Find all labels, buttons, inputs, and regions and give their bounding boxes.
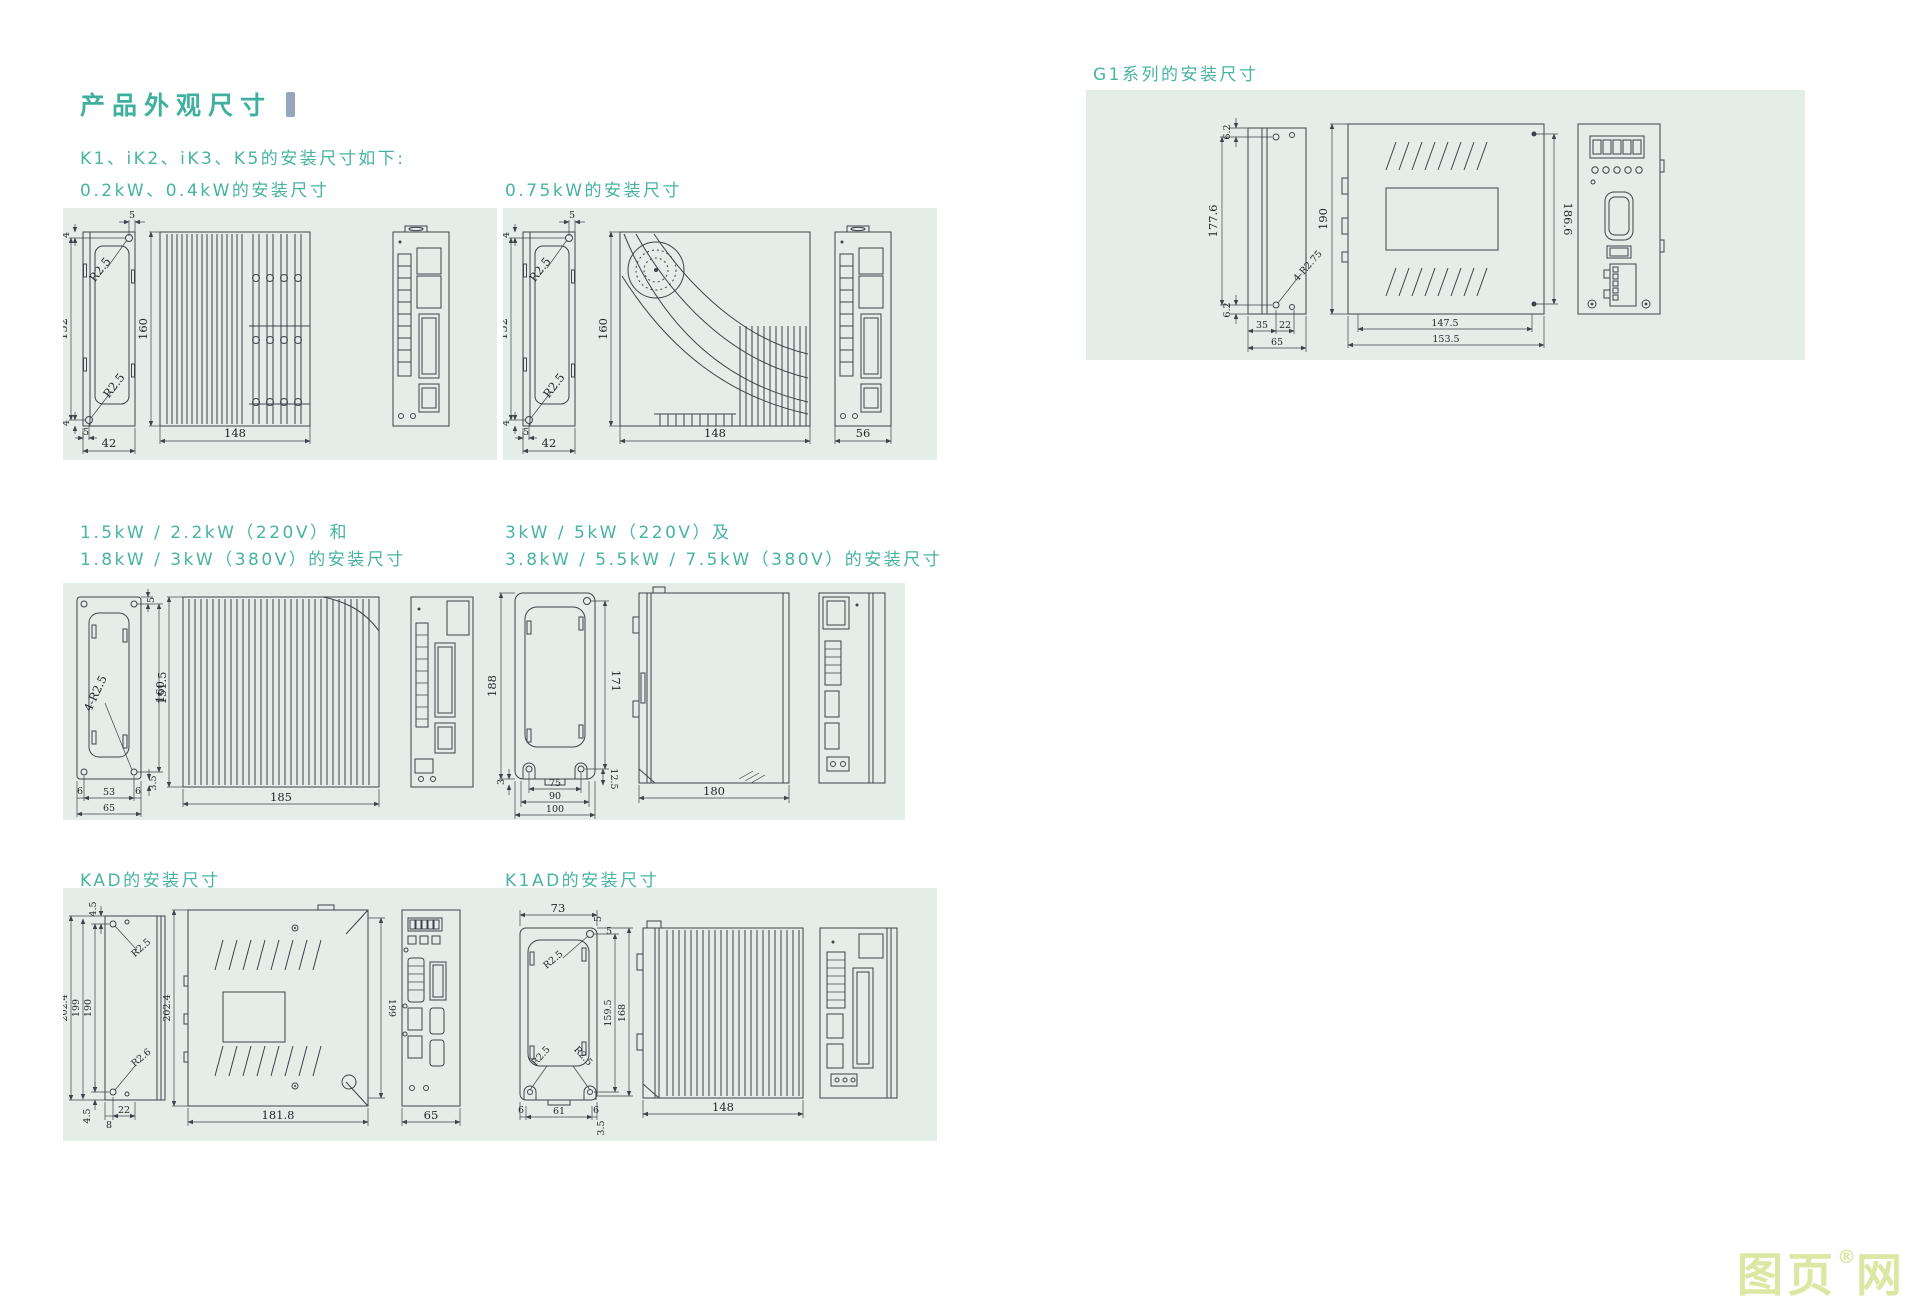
dim-171: 171 bbox=[609, 670, 623, 692]
caption-3kw-line1: 3kW / 5kW（220V）及 bbox=[505, 518, 732, 543]
page-title: 产品外观尺寸 bbox=[80, 86, 272, 122]
dim-35: 3.5 bbox=[596, 1120, 607, 1135]
mounting-plate-view-drawing-3kw: 188 171 3 75 90 100 12.5 bbox=[485, 593, 623, 819]
dim-75: 75 bbox=[549, 778, 561, 789]
side-view-drawing: 4 5 R2.5 152 R2.5 4 5 bbox=[503, 210, 585, 454]
heatsink-view-drawing: 160 148 bbox=[136, 232, 310, 444]
dim-r25-bottom: R2.5 bbox=[540, 371, 568, 401]
mounting-plate-view-drawing-k1ad: 73 5 5 R2.5 159.5 168 R2.5 R2.5 6 bbox=[518, 901, 633, 1136]
top-view-drawing: 190 186.6 147.5 153.5 bbox=[1316, 124, 1575, 348]
dim-35: 35 bbox=[1256, 320, 1268, 331]
back-view-drawing: 56 bbox=[835, 226, 891, 444]
dim-r25-bl: R2.5 bbox=[530, 1044, 553, 1068]
dim-6-right: 6 bbox=[593, 1105, 599, 1116]
side-view-drawing-3kw: 180 bbox=[633, 587, 789, 803]
dim-6-right: 6 bbox=[135, 786, 141, 797]
back-view-drawing-3kw bbox=[819, 593, 885, 783]
dim-42: 42 bbox=[102, 436, 117, 450]
dim-100: 100 bbox=[546, 804, 564, 815]
caption-075kw: 0.75kW的安装尺寸 bbox=[505, 176, 682, 201]
dim-8: 8 bbox=[106, 1120, 112, 1131]
intro-text: K1、iK2、iK3、K5的安装尺寸如下: bbox=[80, 144, 406, 169]
caption-3kw-line2: 3.8kW / 5.5kW / 7.5kW（380V）的安装尺寸 bbox=[505, 545, 942, 570]
dim-185: 185 bbox=[270, 790, 292, 804]
dim-1866: 186.6 bbox=[1561, 203, 1575, 236]
dim-35: 3.5 bbox=[148, 775, 159, 790]
dim-r25-bottom: R2.5 bbox=[100, 371, 128, 401]
dim-5-top: 5 bbox=[569, 210, 575, 221]
dim-2024: 202.4 bbox=[63, 994, 70, 1021]
dim-180: 180 bbox=[703, 784, 725, 798]
heatsink-view-drawing: 160 185 bbox=[153, 597, 379, 807]
dim-90: 90 bbox=[549, 791, 561, 802]
back-view-drawing bbox=[411, 597, 473, 787]
drawing-02kw: 4 5 R2.5 152 R2.5 4 5 bbox=[63, 208, 497, 460]
dim-65: 65 bbox=[424, 1108, 439, 1122]
dim-1535: 153.5 bbox=[1432, 334, 1459, 345]
panel-kad-k1ad: 202.4 199 190 4.5 R2.5 R2.6 8 22 bbox=[63, 888, 937, 1141]
drawing-15kw-3kw: 5 151.5 4-R2.5 6 53 6 65 3.5 bbox=[63, 583, 905, 820]
dim-5-a: 5 bbox=[593, 916, 604, 922]
dim-4r275: 4-R2.75 bbox=[1291, 249, 1324, 284]
side-view-drawing: 6.2 177.6 6.2 4-R2.75 35 22 65 bbox=[1206, 118, 1325, 352]
dim-56: 56 bbox=[856, 426, 871, 440]
dim-1818: 181.8 bbox=[262, 1108, 295, 1122]
dim-6-left: 6 bbox=[77, 786, 83, 797]
side-view-drawing: 4 5 R2.5 152 R2.5 4 5 bbox=[63, 210, 145, 454]
dim-125: 12.5 bbox=[608, 768, 619, 789]
watermark-text-right: 网 bbox=[1856, 1248, 1906, 1302]
dim-190: 190 bbox=[83, 999, 94, 1017]
drawing-075kw: 4 5 R2.5 152 R2.5 4 5 bbox=[503, 208, 937, 460]
dim-65: 65 bbox=[103, 803, 115, 814]
dim-190: 190 bbox=[1316, 208, 1330, 230]
dim-160: 160 bbox=[153, 681, 167, 703]
document-page: 产品外观尺寸 K1、iK2、iK3、K5的安装尺寸如下: 0.2kW、0.4kW… bbox=[0, 0, 1920, 1302]
dim-160: 160 bbox=[596, 318, 610, 340]
dim-5-top: 5 bbox=[129, 210, 135, 221]
dim-62-top: 6.2 bbox=[1222, 124, 1233, 139]
dim-62-bottom: 6.2 bbox=[1222, 302, 1233, 317]
dim-168: 168 bbox=[617, 1004, 628, 1022]
drawing-g1: 6.2 177.6 6.2 4-R2.75 35 22 65 bbox=[1086, 90, 1805, 360]
dim-1475: 147.5 bbox=[1431, 318, 1458, 329]
cover-view-drawing-kad: 202.4 199 181.8 bbox=[162, 905, 397, 1126]
panel-15kw-3kw: 5 151.5 4-R2.5 6 53 6 65 3.5 bbox=[63, 583, 905, 820]
dim-4-top: 4 bbox=[63, 232, 72, 238]
dim-199: 199 bbox=[71, 999, 82, 1017]
dim-4-bottom: 4 bbox=[63, 420, 72, 426]
dim-45-bottom: 4.5 bbox=[82, 1108, 93, 1123]
dim-4-bottom: 4 bbox=[503, 420, 512, 426]
side-view-drawing-kad: 202.4 199 190 4.5 R2.5 R2.6 8 22 bbox=[63, 901, 165, 1131]
watermark: 图页®网 bbox=[1737, 1248, 1906, 1298]
dim-22: 22 bbox=[118, 1105, 130, 1116]
dim-148: 148 bbox=[712, 1100, 734, 1114]
dim-148: 148 bbox=[704, 426, 726, 440]
dim-65: 65 bbox=[1271, 337, 1283, 348]
dim-5-bottom: 5 bbox=[523, 427, 529, 438]
drawing-kad-k1ad: 202.4 199 190 4.5 R2.5 R2.6 8 22 bbox=[63, 888, 937, 1141]
front-panel-view-drawing bbox=[1578, 124, 1664, 314]
panel-075kw: 4 5 R2.5 152 R2.5 4 5 bbox=[503, 208, 937, 460]
front-panel-view-drawing-kad: 65 bbox=[402, 910, 460, 1126]
dim-160: 160 bbox=[136, 318, 150, 340]
dim-45-top: 4.5 bbox=[88, 901, 99, 916]
dim-152: 152 bbox=[63, 318, 70, 340]
panel-g1: 6.2 177.6 6.2 4-R2.75 35 22 65 bbox=[1086, 90, 1805, 360]
dim-5: 5 bbox=[146, 597, 157, 603]
dim-2024-mid: 202.4 bbox=[162, 994, 173, 1021]
dim-r26: R2.6 bbox=[129, 1047, 153, 1070]
page-header: 产品外观尺寸 bbox=[80, 86, 295, 122]
registered-mark-icon: ® bbox=[1837, 1246, 1856, 1268]
dim-4-top: 4 bbox=[503, 232, 512, 238]
dim-3: 3 bbox=[496, 779, 507, 785]
dim-r25-top: R2.5 bbox=[541, 949, 565, 972]
dim-1595: 159.5 bbox=[603, 999, 614, 1026]
dim-188: 188 bbox=[485, 675, 499, 697]
dim-199-mid: 199 bbox=[386, 999, 397, 1017]
dim-152: 152 bbox=[503, 318, 510, 340]
dim-r25: R2.5 bbox=[129, 937, 153, 960]
panel-02kw: 4 5 R2.5 152 R2.5 4 5 bbox=[63, 208, 497, 460]
caption-02kw: 0.2kW、0.4kW的安装尺寸 bbox=[80, 176, 329, 201]
heatsink-view-drawing-k1ad: 148 bbox=[637, 921, 803, 1118]
dim-4r25: 4-R2.5 bbox=[81, 673, 110, 713]
dim-5-bottom: 5 bbox=[83, 427, 89, 438]
watermark-text-left: 图页 bbox=[1737, 1248, 1837, 1302]
dim-42: 42 bbox=[542, 436, 557, 450]
title-accent-bar bbox=[286, 92, 295, 117]
front-fan-view-drawing: 160 148 bbox=[596, 232, 810, 444]
dim-53: 53 bbox=[103, 787, 115, 798]
back-view-drawing-k1ad bbox=[820, 928, 897, 1098]
dim-73: 73 bbox=[551, 901, 566, 915]
caption-15kw-line2: 1.8kW / 3kW（380V）的安装尺寸 bbox=[80, 545, 406, 570]
caption-g1: G1系列的安装尺寸 bbox=[1093, 60, 1259, 85]
dim-148: 148 bbox=[224, 426, 246, 440]
dim-22: 22 bbox=[1279, 320, 1291, 331]
dim-61: 61 bbox=[553, 1106, 565, 1117]
back-view-drawing bbox=[393, 226, 449, 426]
caption-15kw-line1: 1.5kW / 2.2kW（220V）和 bbox=[80, 518, 349, 543]
dim-1776: 177.6 bbox=[1206, 205, 1220, 238]
dim-6-left: 6 bbox=[518, 1105, 524, 1116]
